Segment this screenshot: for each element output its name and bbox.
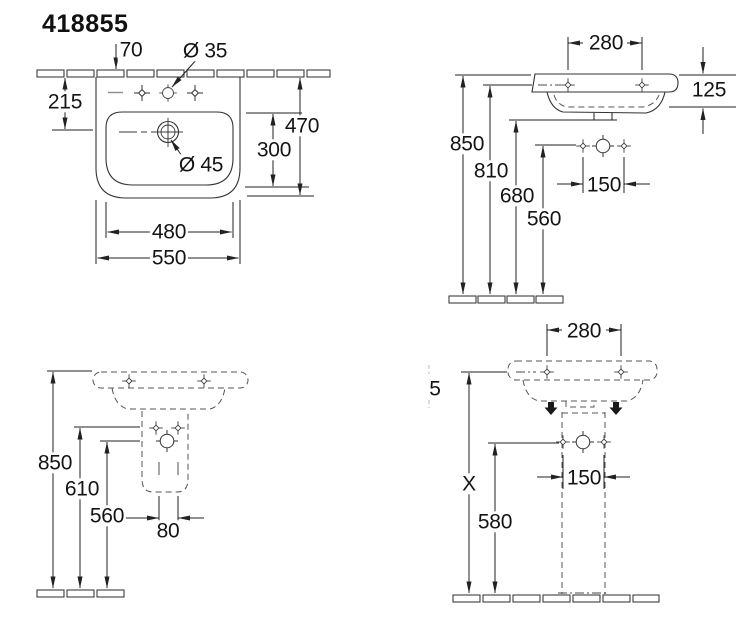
- dim-label-wall-offset: 70: [118, 39, 145, 60]
- fixing-hole-cross-icon: [540, 365, 554, 379]
- supply-hole-cross-icon: [576, 139, 590, 153]
- supply-hole-cross-icon: [556, 435, 570, 449]
- tap-hole-cross-icon: [134, 85, 150, 101]
- fixing-hole-cross-icon: [122, 374, 136, 388]
- dim-label-tap-spacing: 280: [587, 32, 625, 53]
- dim-label-rim-height: 850: [36, 452, 74, 473]
- dim-label-left-depth: 215: [46, 91, 84, 112]
- tap-hole-cross-icon: [187, 85, 203, 101]
- dim-label-supply-height: 560: [525, 208, 563, 229]
- dim-label-rim-height: 850: [448, 133, 486, 154]
- dim-label-inner-depth: 300: [255, 139, 293, 160]
- bowl-profile: [547, 92, 665, 113]
- drain-supply-hole-icon: [572, 431, 594, 453]
- supply-hole-cross-icon: [597, 435, 611, 449]
- supply-hole-cross-icon: [617, 139, 631, 153]
- dim-label-faucet-dia: Ø 35: [181, 40, 229, 61]
- drain-hole-icon: [153, 118, 183, 147]
- fixing-hole-cross-icon: [614, 365, 628, 379]
- dim-label-rim-thickness: 125: [690, 79, 728, 100]
- drain-stub-dashed: [566, 401, 594, 407]
- basin-rim-profile: [532, 74, 678, 92]
- dim-label-supply-spacing: 150: [585, 174, 623, 195]
- dim-label-drain-width: 80: [155, 520, 182, 541]
- mount-direction-arrow-icon: [545, 402, 558, 415]
- drain-supply-hole-icon: [156, 430, 178, 452]
- floor-hatch: [453, 595, 659, 602]
- drawing-linework: [0, 0, 737, 630]
- dim-label-inner-width: 480: [150, 221, 188, 242]
- basin-rim-dashed: [508, 361, 657, 380]
- bowl-dashed: [112, 388, 225, 409]
- product-number: 418855: [42, 10, 128, 39]
- basin-rim-dashed: [93, 372, 248, 388]
- pedestal-view: [429, 324, 659, 602]
- dim-label-tap-spacing: 280: [565, 320, 603, 341]
- fixing-hole-cross-icon: [561, 78, 575, 92]
- floor-hatch: [37, 590, 124, 597]
- dim-label-drain-height: 680: [498, 185, 536, 206]
- dim-label-supply-height: 580: [476, 511, 514, 532]
- bowl-dashed: [523, 380, 643, 401]
- dim-label-overall-width: 550: [150, 247, 188, 268]
- dim-label-cropped: 5: [427, 378, 442, 399]
- technical-drawing: 418855 70 Ø 35 215 Ø 45 470 300 480 550 …: [0, 0, 737, 630]
- supply-hole-cross-icon: [149, 421, 163, 435]
- mount-direction-arrow-icon: [610, 402, 623, 415]
- drain-stub: [594, 113, 612, 120]
- fixing-hole-cross-icon: [197, 374, 211, 388]
- floor-hatch: [449, 296, 563, 303]
- supply-hole-cross-icon: [171, 421, 185, 435]
- fixing-hole-cross-icon: [635, 78, 649, 92]
- dim-label-overall-depth: 470: [283, 115, 321, 136]
- dim-label-fixing-height: 810: [472, 160, 510, 181]
- shroud-dashed: [142, 411, 188, 492]
- drain-supply-hole-icon: [592, 135, 614, 157]
- dim-label-fixing-height: 610: [63, 478, 101, 499]
- dim-label-supply-height: 560: [88, 505, 126, 526]
- dim-label-supply-spacing: 150: [565, 467, 603, 488]
- faucet-hole-icon: [159, 84, 177, 102]
- dim-label-height-x: X: [460, 473, 478, 494]
- dim-label-drain-dia: Ø 45: [177, 154, 225, 175]
